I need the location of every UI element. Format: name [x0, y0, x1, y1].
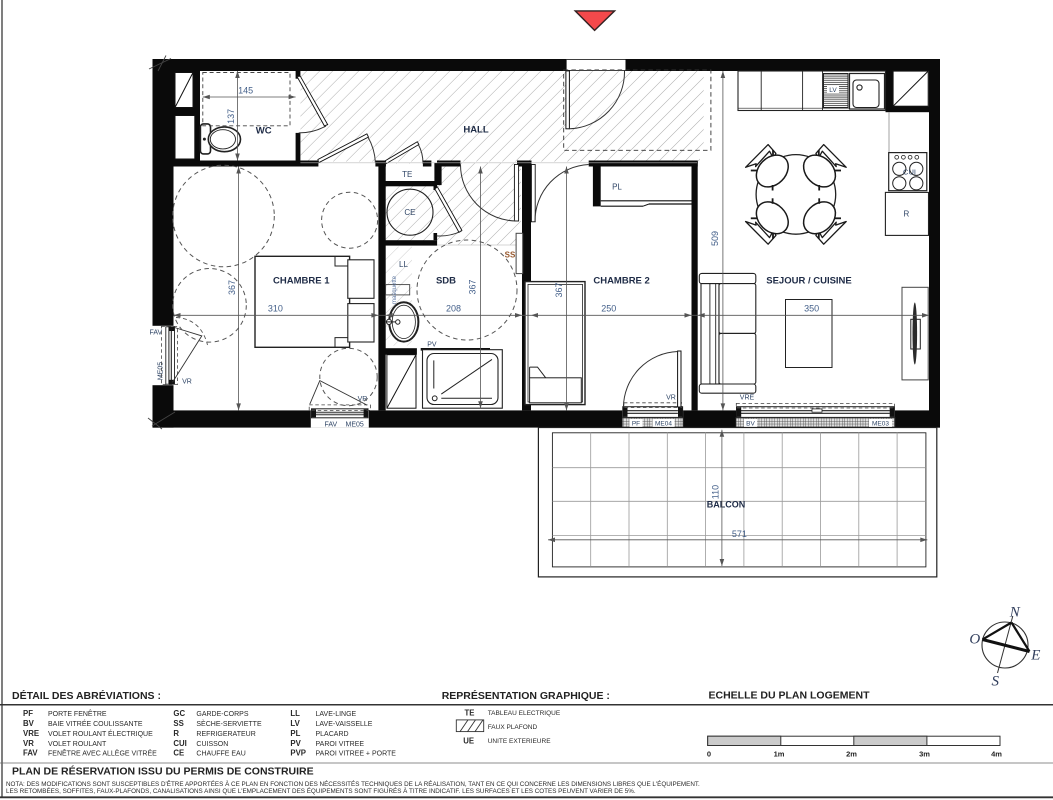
svg-text:TE: TE [465, 708, 475, 717]
svg-text:PAROI VITREE + PORTE: PAROI VITREE + PORTE [316, 751, 397, 758]
svg-text:FAV: FAV [149, 329, 162, 336]
svg-text:110: 110 [710, 485, 720, 499]
svg-text:CE: CE [404, 208, 415, 217]
svg-text:R: R [173, 729, 179, 738]
svg-text:208: 208 [446, 304, 461, 314]
svg-text:PL: PL [290, 729, 300, 738]
svg-text:SEJOUR / CUISINE: SEJOUR / CUISINE [766, 275, 852, 286]
svg-text:masquette: masquette [392, 275, 398, 304]
svg-text:REPRÉSENTATION GRAPHIQUE :: REPRÉSENTATION GRAPHIQUE : [442, 689, 610, 702]
svg-text:310: 310 [268, 304, 283, 314]
svg-text:FAUX PLAFOND: FAUX PLAFOND [488, 724, 538, 731]
svg-text:137: 137 [226, 109, 236, 124]
svg-text:WC: WC [256, 125, 272, 136]
svg-text:O: O [969, 632, 980, 648]
svg-text:S: S [992, 674, 1000, 690]
svg-text:CUISSON: CUISSON [196, 741, 228, 748]
svg-text:ECHELLE DU PLAN LOGEMENT: ECHELLE DU PLAN LOGEMENT [709, 690, 871, 702]
svg-text:PLAN DE RÉSERVATION ISSU DU PE: PLAN DE RÉSERVATION ISSU DU PERMIS DE CO… [12, 765, 314, 778]
svg-text:N: N [1009, 605, 1021, 621]
svg-text:CHAMBRE 1: CHAMBRE 1 [273, 275, 330, 286]
svg-text:367: 367 [227, 280, 237, 295]
svg-text:145: 145 [238, 86, 253, 96]
svg-text:CE: CE [173, 749, 184, 758]
svg-text:BV: BV [746, 421, 755, 428]
svg-text:PAROI VITREE: PAROI VITREE [316, 741, 365, 748]
svg-text:GARDE-CORPS: GARDE-CORPS [196, 711, 248, 718]
svg-text:3m: 3m [919, 750, 930, 759]
svg-text:PORTE FENÊTRE: PORTE FENÊTRE [48, 709, 107, 718]
svg-text:LAVE-LINGE: LAVE-LINGE [316, 711, 357, 718]
svg-text:VR: VR [666, 395, 676, 402]
svg-text:VOLET ROULANT ÉLECTRIQUE: VOLET ROULANT ÉLECTRIQUE [48, 729, 153, 738]
svg-text:HALL: HALL [463, 124, 489, 135]
svg-text:VRE: VRE [740, 394, 755, 401]
svg-text:1m: 1m [774, 750, 785, 759]
svg-text:VR: VR [23, 739, 34, 748]
svg-text:250: 250 [601, 304, 616, 314]
svg-text:DÉTAIL DES ABRÉVIATIONS :: DÉTAIL DES ABRÉVIATIONS : [12, 689, 161, 702]
svg-text:LES RETOMBÉES, SOFFITES, FAUX-: LES RETOMBÉES, SOFFITES, FAUX-PLAFONDS, … [6, 786, 636, 795]
svg-text:BALCON: BALCON [707, 500, 746, 510]
svg-text:FENÊTRE AVEC ALLÈGE VITRÉE: FENÊTRE AVEC ALLÈGE VITRÉE [48, 749, 157, 758]
svg-text:LL: LL [290, 709, 300, 718]
svg-text:E: E [1030, 648, 1040, 664]
svg-text:PLACARD: PLACARD [316, 731, 349, 738]
svg-text:4m: 4m [991, 750, 1002, 759]
svg-text:509: 509 [710, 231, 720, 246]
svg-text:LV: LV [290, 719, 300, 728]
svg-text:REFRIGERATEUR: REFRIGERATEUR [196, 731, 255, 738]
svg-text:BAIE VITRÉE COULISSANTE: BAIE VITRÉE COULISSANTE [48, 719, 143, 728]
svg-text:VRE: VRE [23, 729, 39, 738]
svg-text:367: 367 [554, 282, 564, 297]
svg-text:CUI: CUI [903, 168, 916, 177]
svg-text:SS: SS [173, 719, 183, 728]
svg-text:FAV: FAV [23, 749, 38, 758]
svg-text:SDB: SDB [436, 275, 456, 286]
svg-text:PVP: PVP [290, 749, 306, 758]
svg-text:PV: PV [290, 739, 301, 748]
svg-text:ME03: ME03 [872, 421, 889, 428]
svg-text:R: R [904, 210, 910, 219]
svg-text:SÈCHE-SERVIETTE: SÈCHE-SERVIETTE [196, 719, 262, 728]
svg-text:367: 367 [467, 279, 477, 294]
svg-text:TABLEAU ELECTRIQUE: TABLEAU ELECTRIQUE [488, 710, 561, 717]
svg-text:LV: LV [829, 87, 837, 94]
svg-text:571: 571 [732, 529, 747, 539]
svg-text:NOTA: DES MODIFICATIONS SONT S: NOTA: DES MODIFICATIONS SONT SUSCEPTIBLE… [6, 779, 700, 788]
svg-text:FAV: FAV [325, 421, 338, 428]
svg-text:TE: TE [402, 170, 412, 179]
svg-text:UE: UE [463, 737, 474, 746]
svg-text:PF: PF [23, 709, 33, 718]
svg-text:PF: PF [632, 421, 640, 428]
svg-text:VOLET ROULANT: VOLET ROULANT [48, 741, 107, 748]
svg-text:CHAMBRE 2: CHAMBRE 2 [593, 275, 649, 286]
svg-text:CHAUFFE EAU: CHAUFFE EAU [196, 751, 245, 758]
svg-text:PL: PL [612, 182, 622, 191]
svg-text:LL: LL [399, 260, 408, 269]
svg-text:350: 350 [804, 304, 819, 314]
svg-text:CUI: CUI [173, 739, 186, 748]
svg-text:ME05: ME05 [157, 362, 164, 380]
svg-text:SS: SS [505, 251, 516, 260]
svg-text:VR: VR [182, 379, 192, 386]
svg-text:LAVE-VAISSELLE: LAVE-VAISSELLE [316, 721, 373, 728]
svg-text:ME05: ME05 [346, 421, 364, 428]
svg-text:ME04: ME04 [655, 421, 672, 428]
svg-text:GC: GC [173, 709, 185, 718]
svg-text:2m: 2m [846, 750, 857, 759]
svg-text:PV: PV [427, 342, 437, 349]
svg-text:BV: BV [23, 719, 35, 728]
svg-text:0: 0 [707, 750, 711, 759]
svg-text:UNITE EXTERIEURE: UNITE EXTERIEURE [488, 738, 552, 745]
